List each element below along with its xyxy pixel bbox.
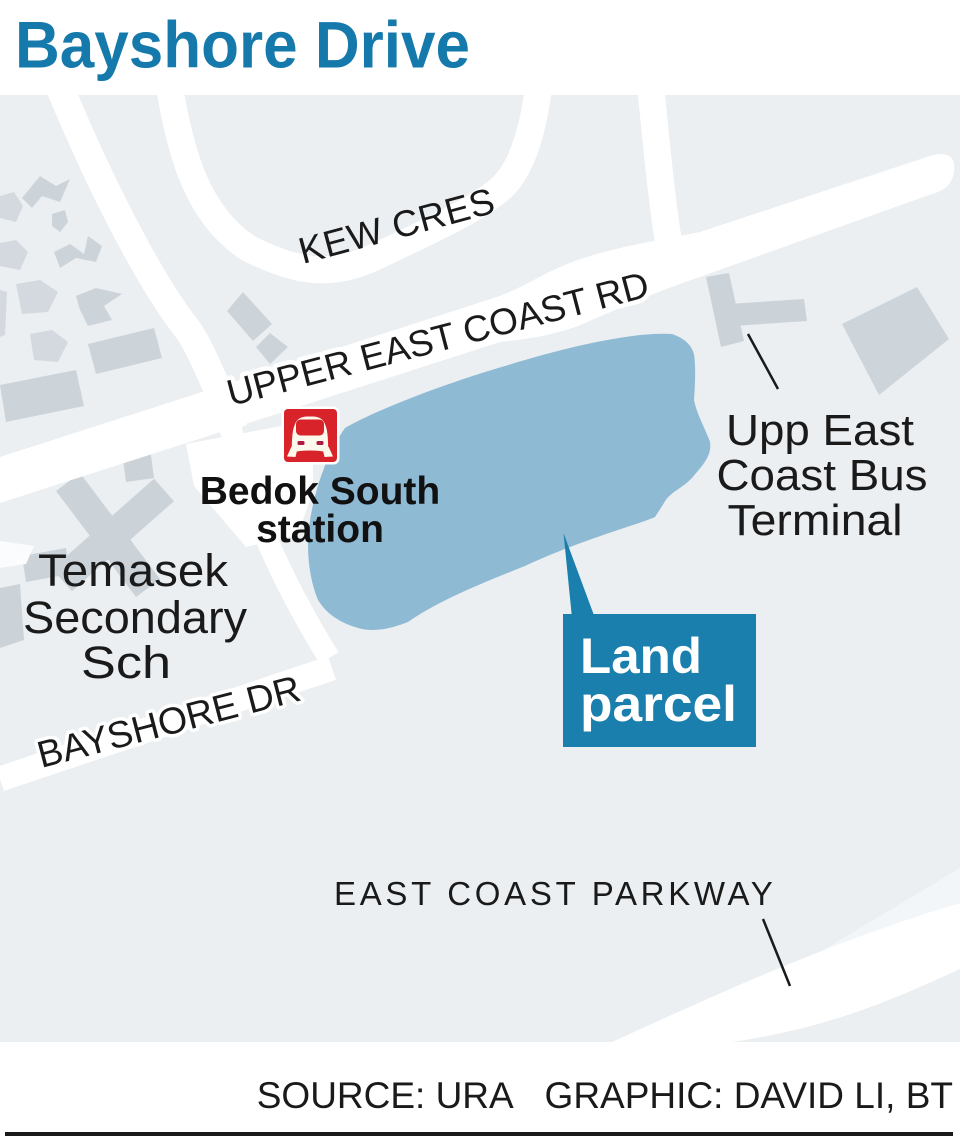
svg-text:SOURCE: URA GRAPHIC: DAVID L: SOURCE: URA GRAPHIC: DAVID LI, BT <box>257 1075 953 1116</box>
svg-text:EAST COAST PARKWAY: EAST COAST PARKWAY <box>334 875 777 912</box>
svg-text:station: station <box>256 508 384 551</box>
svg-text:parcel: parcel <box>580 676 737 732</box>
svg-text:Terminal: Terminal <box>728 496 903 545</box>
svg-text:Secondary: Secondary <box>23 592 248 643</box>
svg-text:Bayshore Drive: Bayshore Drive <box>15 8 470 82</box>
svg-text:Bedok South: Bedok South <box>200 470 441 513</box>
svg-text:Sch: Sch <box>81 637 171 688</box>
svg-text:Coast Bus: Coast Bus <box>717 451 928 500</box>
svg-text:Upp East: Upp East <box>726 406 914 455</box>
svg-text:Temasek: Temasek <box>38 545 229 596</box>
